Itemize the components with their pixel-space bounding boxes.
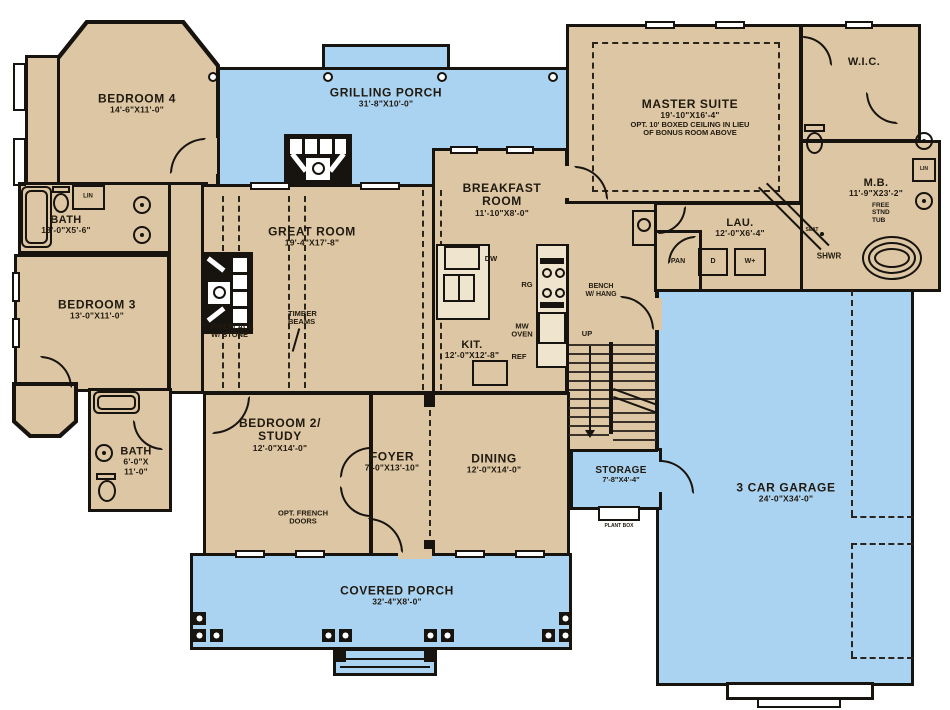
room-dims: 7'-0"X13'-10" [365,464,419,474]
porch-step-post [334,650,346,662]
room-label-master-suite: MASTER SUITE 19'-10"X16'-4" OPT. 10' BOX… [631,98,750,138]
room-dims: 12'-0"X14'-0" [467,466,521,476]
room-name: MASTER SUITE [631,98,750,111]
window-seat-box [13,63,26,111]
porch-column [559,629,572,642]
porch-column-dot [208,72,218,82]
mb-toilet-tank [804,124,825,132]
range-burner [542,288,552,298]
label-line: DOORS [278,518,328,526]
garage-stoop-step [757,698,841,708]
label-lin-mb: LIN [920,167,928,173]
porch-column [424,629,437,642]
room-label-bedroom3: BEDROOM 3 13'-0"X11'-0" [58,299,136,322]
label-line: TUB [872,217,890,224]
stairs-divider-wall [609,342,613,434]
window [450,146,478,154]
room-name: ROOM [463,195,542,208]
room-dims: 32'-4"X8'-0" [340,598,454,608]
porch-column-dot [437,72,447,82]
porch-column-dot [323,72,333,82]
label-line: FREE [872,202,890,209]
porch-column [559,612,572,625]
up-arrow-line [589,346,591,430]
room-name: STUDY [239,430,321,443]
range-burner [555,288,565,298]
bath2-toilet [98,480,116,502]
outdoor-fireplace-ring [312,162,325,175]
window [235,550,265,558]
wall-oven [538,312,566,344]
room-dims: 12'-0"X14'-0" [239,444,321,454]
bath2-toilet-tank [96,473,116,480]
label-seat: SEAT [806,228,819,234]
room-name: BEDROOM 2/ [239,417,321,430]
label-pan: PAN [671,258,685,266]
door-opening [398,549,432,559]
bedroom4-closets [25,55,60,199]
label-mw-oven: MW OVEN [511,323,532,340]
label-line: W/ STONE [211,331,254,339]
up-arrow-head [585,430,595,438]
room-label-laundry: LAU. 12'-0"X6'-4" [715,217,764,239]
window [845,21,873,29]
window [360,182,400,190]
window [250,182,290,190]
room-label-bath2: BATH 6'-0"X 11'-0" [120,445,151,476]
label-french-doors: OPT. FRENCH DOORS [278,510,328,527]
label-rg: RG [521,281,532,289]
label-fireplace: FIREPLACE W/ STONE [211,323,254,340]
mb-sink-dot [922,199,926,203]
window [455,550,485,558]
porch-column [339,629,352,642]
porch-column [441,629,454,642]
room-dims: 24'-0"X34'-0" [736,495,835,505]
label-dryer: D [710,258,715,266]
room-name: GRILLING PORCH [330,87,442,100]
label-bench: BENCH W/ HANG [585,283,616,299]
room-dims: 19'-4"X17'-8" [268,239,356,249]
room-label-bath1: BATH 13'-0"X5'-6" [41,214,90,236]
label-lin-bath: LIN [83,194,93,201]
room-dims: 14'-6"X11'-0" [98,106,176,116]
bath1-toilet [53,193,69,213]
window [12,318,20,348]
bedroom3-room [14,254,170,392]
porch-column [210,629,223,642]
plant-box [598,506,640,521]
refrigerator [472,360,508,386]
mb-sink-dot [922,139,926,143]
bath2-sink-dot [102,451,106,455]
garage-bay-dashed [851,543,913,545]
mb-toilet [806,132,823,154]
label-dw: DW [485,255,498,263]
porch-step-line [340,666,430,668]
room-label-master-bath: M.B. 11'-9"X23'-2" [849,177,903,199]
porch-column [322,629,335,642]
room-dims: 13'-0"X11'-0" [58,312,136,322]
room-dims: 11'-10"X8'-0" [463,209,542,219]
laundry-sink [637,218,651,232]
room-name: BREAKFAST [463,182,542,195]
garage-bay-dashed [851,516,913,518]
window-seat-box [13,138,26,186]
door-opening [562,166,574,198]
room-name: GREAT ROOM [268,226,356,239]
door-opening [205,138,217,174]
room-name: DINING [467,453,521,466]
label-shwr: SHWR [817,253,841,262]
room-label-dining: DINING 12'-0"X14'-0" [467,453,521,476]
room-label-bedroom4: BEDROOM 4 14'-6"X11'-0" [98,93,176,116]
porch-column [542,629,555,642]
label-ref: REF [512,353,527,361]
bedroom3-bay-floor [16,386,74,434]
label-washer: W+ [745,258,756,266]
window [506,146,534,154]
garage-bay-dashed [851,543,853,657]
room-dims: 12'-0"X6'-4" [715,229,764,239]
label-line: BEAMS [288,318,317,326]
window [12,272,20,302]
room-label-storage: STORAGE 7'-8"X4'-4" [595,465,646,485]
porch-steps [333,648,437,676]
window [515,550,545,558]
window [295,550,325,558]
floor-plan: GRILLING PORCH 31'-8"X10'-0" BEDROOM 4 1… [0,0,950,710]
room-label-wic: W.I.C. [848,56,880,68]
bath1-toilet-tank [52,186,70,193]
window [645,21,675,29]
label-timber-beams: TIMBER BEAMS [288,310,317,327]
room-dims: 11'-0" [120,467,151,477]
porch-step-post [424,650,436,662]
label-plant-box: PLANT BOX [605,524,634,530]
label-up: UP [582,330,592,338]
porch-column [193,629,206,642]
room-dims: 31'-8"X10'-0" [330,100,442,110]
bath1-sink-dot [140,203,144,207]
room-label-great-room: GREAT ROOM 19'-4"X17'-8" [268,226,356,249]
room-dims: 11'-9"X23'-2" [849,189,903,199]
porch-column-dot [548,72,558,82]
room-label-breakfast: BREAKFAST ROOM 11'-10"X8'-0" [463,182,542,218]
range-bottom-bar [540,302,564,308]
room-dims: 12'-0"X12'-8" [445,351,499,361]
room-name: BEDROOM 3 [58,299,136,312]
label-line: OVEN [511,331,532,339]
label-line: BENCH [585,283,616,291]
window [715,21,745,29]
shower-dot [820,232,824,236]
room-label-bedroom2: BEDROOM 2/ STUDY 12'-0"X14'-0" [239,417,321,453]
room-label-covered-porch: COVERED PORCH 32'-4"X8'-0" [340,585,454,608]
room-name: FOYER [365,451,419,464]
door-opening [563,204,575,244]
room-note: OF BONUS ROOM ABOVE [631,129,750,137]
room-dims: 13'-0"X5'-6" [41,226,90,236]
room-label-foyer: FOYER 7'-0"X13'-10" [365,451,419,474]
dishwasher [444,246,480,270]
label-line: W/ HANG [585,291,616,299]
range-burner [542,268,552,278]
island-sink-divider [458,276,460,300]
room-label-garage: 3 CAR GARAGE 24'-0"X34'-0" [736,482,835,505]
outdoor-fireplace-grate [290,139,346,154]
bath1-sink-dot [140,233,144,237]
label-line: STND [872,209,890,216]
porch-column [193,612,206,625]
range-burner [555,268,565,278]
room-name: 3 CAR GARAGE [736,482,835,495]
garage-bay-dashed [851,290,853,516]
bath2-tub-inner [97,395,136,410]
label-free-stnd-tub: FREE STND TUB [872,202,890,224]
room-dims: 7'-8"X4'-4" [595,476,646,484]
free-standing-tub-inner [874,248,910,268]
stairs-right-lower [613,412,656,442]
timber-beam-line [422,190,424,390]
room-label-kitchen: KIT. 12'-0"X12'-8" [445,339,499,361]
stairs-right-run [613,344,656,402]
room-name: BEDROOM 4 [98,93,176,106]
range-top-bar [540,258,564,264]
great-room-fireplace-ring [213,286,226,299]
great-room-fireplace-grate [233,258,247,328]
porch-step-line [340,658,430,660]
room-label-grilling-porch: GRILLING PORCH 31'-8"X10'-0" [330,87,442,110]
divider-post [424,394,435,407]
room-name: W.I.C. [848,56,880,68]
room-name: COVERED PORCH [340,585,454,598]
garage-bay-dashed [851,657,913,659]
foyer-dining-divider-dashed [429,400,431,546]
